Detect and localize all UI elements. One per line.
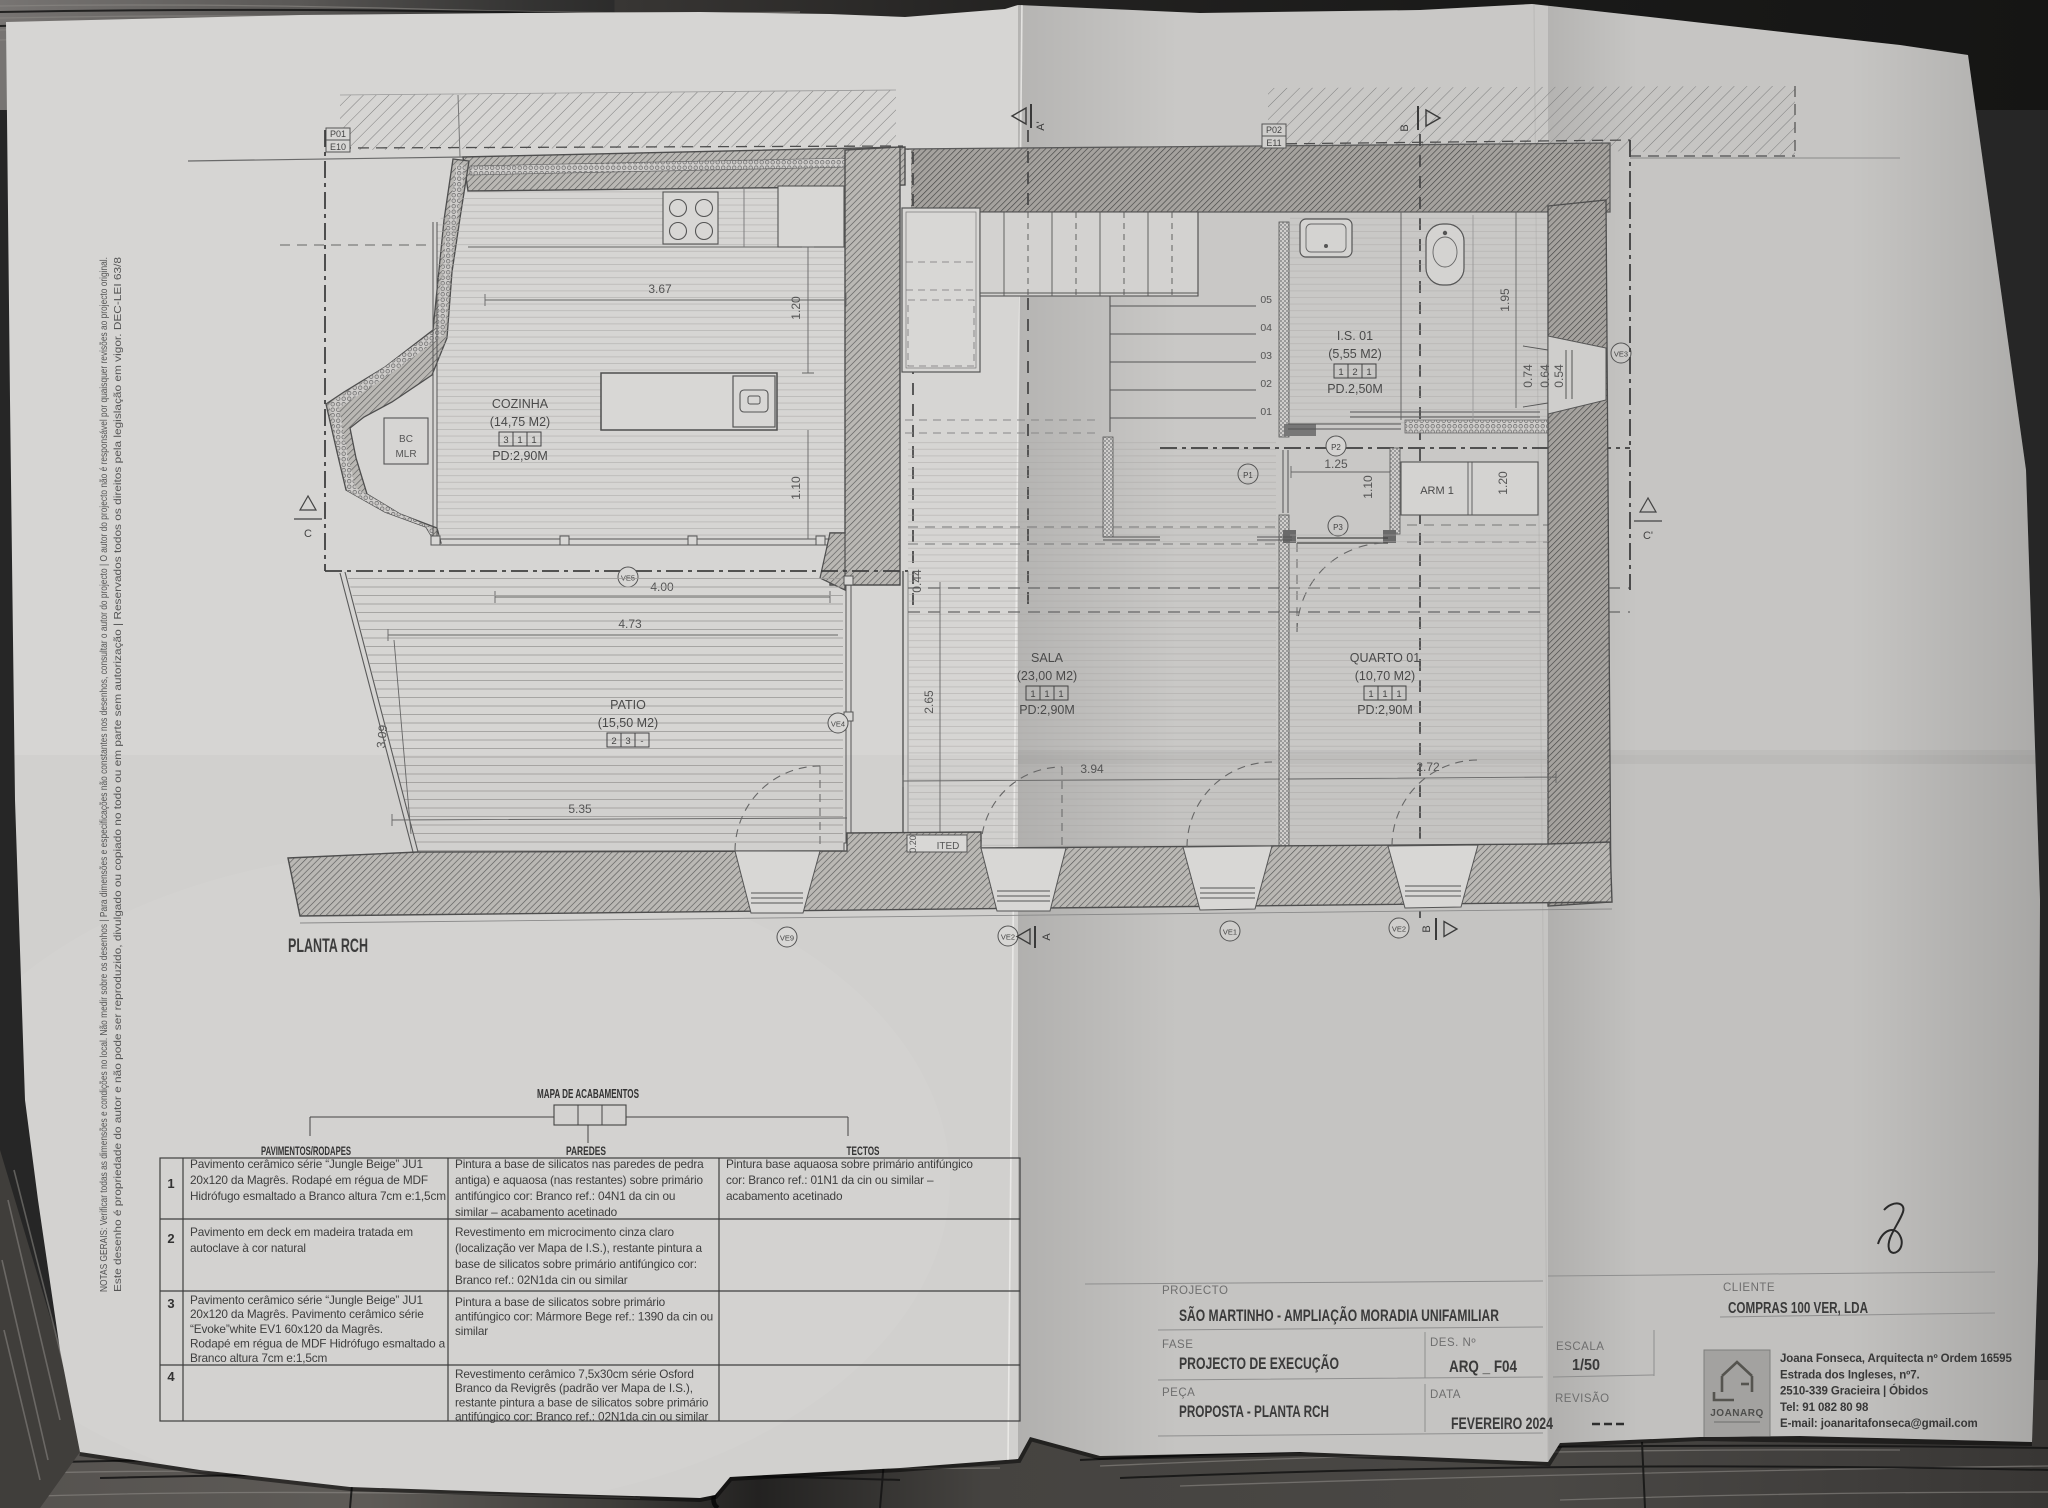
svg-text:3: 3 [167,1296,174,1311]
svg-text:1.95: 1.95 [1498,288,1512,312]
svg-text:MAPA DE ACABAMENTOS: MAPA DE ACABAMENTOS [537,1087,639,1101]
svg-text:01: 01 [1260,406,1272,418]
svg-text:2: 2 [167,1231,174,1246]
svg-text:3.94: 3.94 [1080,762,1104,776]
svg-text:COMPRAS 100 VER, LDA: COMPRAS 100 VER, LDA [1728,1300,1868,1317]
svg-text:VE2: VE2 [1001,933,1015,942]
svg-text:B: B [1399,124,1411,131]
svg-text:(14,75 M2): (14,75 M2) [490,415,550,429]
svg-text:3: 3 [625,736,630,747]
svg-text:Pavimento cerâmico série “Jung: Pavimento cerâmico série “Jungle Beige” … [190,1157,446,1203]
svg-text:E10: E10 [330,142,346,152]
svg-text:1: 1 [1366,367,1371,378]
svg-text:1: 1 [1368,689,1373,700]
svg-text:P02: P02 [1266,125,1282,135]
svg-text:02: 02 [1260,378,1272,390]
svg-text:1: 1 [1382,689,1387,700]
svg-text:PD:2,90M: PD:2,90M [1019,703,1075,717]
svg-text:(5,55 M2): (5,55 M2) [1328,347,1382,361]
svg-text:1.20: 1.20 [1496,471,1510,495]
svg-text:2.65: 2.65 [922,690,936,714]
svg-text:COZINHA: COZINHA [492,397,549,411]
svg-text:PLANTA RCH: PLANTA RCH [288,936,368,957]
svg-text:1: 1 [167,1176,174,1191]
svg-text:1: 1 [1338,367,1343,378]
svg-text:(23,00 M2): (23,00 M2) [1017,669,1077,683]
svg-text:SALA: SALA [1031,651,1064,665]
svg-text:PEÇA: PEÇA [1162,1387,1195,1399]
svg-text:QUARTO 01: QUARTO 01 [1350,651,1420,665]
svg-text:CLIENTE: CLIENTE [1723,1282,1775,1294]
svg-text:VE2: VE2 [1392,925,1406,934]
svg-text:VE9: VE9 [780,934,794,943]
svg-text:ESCALA: ESCALA [1556,1341,1604,1353]
svg-text:5.35: 5.35 [568,802,592,816]
svg-text:FEVEREIRO 2024: FEVEREIRO 2024 [1451,1414,1553,1433]
svg-text:VE4: VE4 [831,720,845,729]
svg-text:VE3: VE3 [1614,350,1628,359]
svg-text:VE1: VE1 [1223,928,1237,937]
svg-text:4: 4 [167,1369,175,1384]
svg-text:ITED: ITED [937,841,960,852]
svg-text:(10,70 M2): (10,70 M2) [1355,669,1415,683]
svg-text:PD:2,90M: PD:2,90M [1357,703,1413,717]
svg-text:1.20: 1.20 [789,296,803,320]
svg-text:04: 04 [1260,322,1272,334]
svg-text:3.67: 3.67 [648,282,672,296]
svg-text:3: 3 [503,435,508,446]
svg-text:Este desenho é propriedade do: Este desenho é propriedade do autor e nã… [113,256,124,1292]
svg-text:-: - [640,736,643,747]
svg-text:I.S. 01: I.S. 01 [1337,329,1373,343]
svg-text:1/50: 1/50 [1572,1357,1600,1374]
svg-text:BC: BC [399,434,413,445]
svg-text:1: 1 [531,435,536,446]
svg-text:P2: P2 [1331,443,1341,452]
svg-text:1.25: 1.25 [1324,457,1348,471]
svg-text:1.10: 1.10 [1361,475,1375,499]
svg-text:DATA: DATA [1430,1389,1461,1401]
svg-text:C: C [304,528,312,540]
svg-text:0.20: 0.20 [908,835,918,853]
svg-text:(15,50 M2): (15,50 M2) [598,716,658,730]
svg-text:C': C' [1643,530,1653,542]
svg-text:05: 05 [1260,294,1272,306]
svg-text:B: B [1421,925,1433,932]
svg-text:3.09: 3.09 [374,724,390,749]
svg-text:P1: P1 [1243,471,1253,480]
svg-text:A: A [1041,933,1053,941]
svg-text:JOANARQ: JOANARQ [1710,1408,1764,1419]
svg-text:0.44: 0.44 [910,569,924,593]
svg-text:PD:2,90M: PD:2,90M [492,449,548,463]
svg-text:1: 1 [517,435,522,446]
svg-text:03: 03 [1260,350,1272,362]
svg-text:1: 1 [1030,689,1035,700]
svg-text:SÃO MARTINHO - AMPLIAÇÃO MO: SÃO MARTINHO - AMPLIAÇÃO MORADIA UNIFAMI… [1179,1305,1499,1325]
svg-text:1: 1 [1396,689,1401,700]
svg-text:P01: P01 [330,129,346,139]
svg-text:DES. Nº: DES. Nº [1430,1337,1476,1349]
svg-text:1.10: 1.10 [789,476,803,500]
svg-text:FASE: FASE [1162,1339,1193,1351]
svg-text:PROJECTO: PROJECTO [1162,1285,1228,1297]
svg-text:PROPOSTA - PLANTA RCH: PROPOSTA - PLANTA RCH [1179,1402,1329,1421]
svg-text:1: 1 [1058,689,1063,700]
svg-text:0.64: 0.64 [1538,364,1552,388]
svg-text:PD.2,50M: PD.2,50M [1327,382,1383,396]
svg-text:Revestimento cerâmico 7,5x30cm: Revestimento cerâmico 7,5x30cm série Osf… [455,1367,709,1424]
svg-text:NOTAS GERAIS: Verificar todas: NOTAS GERAIS: Verificar todas as dimensõ… [99,257,110,1292]
svg-text:A': A' [1035,121,1047,130]
svg-text:0.74: 0.74 [1521,364,1535,388]
svg-text:ARQ _ F04: ARQ _ F04 [1449,1357,1517,1376]
svg-text:2.72: 2.72 [1416,760,1440,774]
svg-text:0.54: 0.54 [1552,364,1566,388]
svg-text:MLR: MLR [395,449,416,460]
svg-text:PROJECTO DE EXECUÇÃO: PROJECTO DE EXECUÇÃO [1179,1353,1339,1373]
svg-text:2: 2 [611,736,616,747]
svg-text:4.73: 4.73 [618,617,642,631]
svg-text:1: 1 [1044,689,1049,700]
svg-text:ARM 1: ARM 1 [1420,485,1454,497]
svg-text:2: 2 [1352,367,1357,378]
svg-text:E11: E11 [1266,138,1281,148]
svg-text:REVISÃO: REVISÃO [1555,1392,1610,1405]
svg-text:PATIO: PATIO [610,698,646,712]
